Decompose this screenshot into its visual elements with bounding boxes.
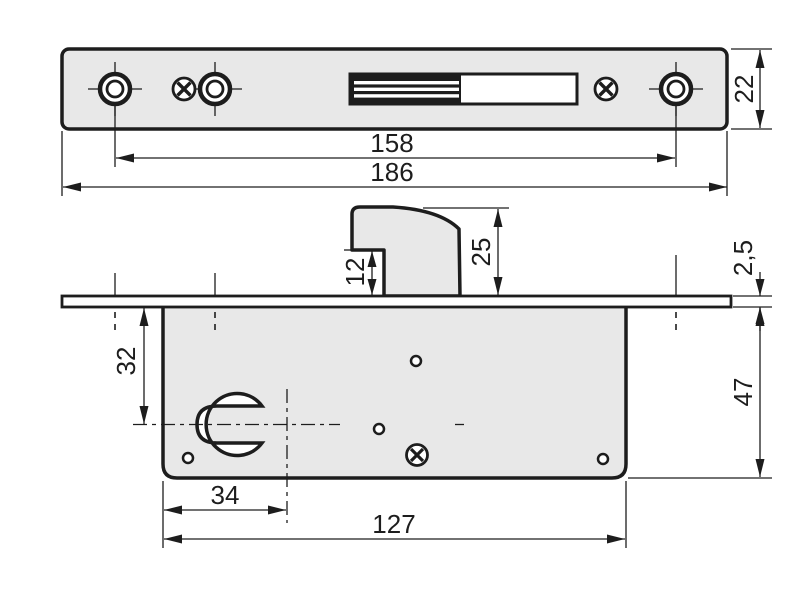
faceplate-front-view xyxy=(62,49,727,129)
dim-body-height-47: 47 xyxy=(628,308,772,478)
pin-hole xyxy=(374,424,384,434)
dim-label: 158 xyxy=(370,128,413,158)
bolt-slot xyxy=(350,74,577,104)
faceplate-edge-view xyxy=(62,296,731,307)
dim-label: 127 xyxy=(372,509,415,539)
lock-body-side-view xyxy=(62,207,731,523)
cross-screw-icon xyxy=(407,445,428,466)
dim-faceplate-width-22: 22 xyxy=(729,49,772,129)
dim-label: 34 xyxy=(211,480,240,510)
drawing-page: 158 186 22 25 12 2,5 xyxy=(0,0,800,600)
cross-screw-icon xyxy=(595,78,617,100)
dim-hook-notch-12: 12 xyxy=(340,250,377,295)
dim-label: 2,5 xyxy=(728,240,758,276)
pin-hole xyxy=(183,453,193,463)
drawing-canvas: 158 186 22 25 12 2,5 xyxy=(0,0,800,600)
pin-hole xyxy=(598,454,608,464)
dim-label: 25 xyxy=(466,238,496,267)
cross-screw-icon xyxy=(173,78,195,100)
dim-label: 186 xyxy=(370,157,413,187)
dim-faceplate-thickness-2-5: 2,5 xyxy=(728,240,772,331)
dim-label: 12 xyxy=(340,258,370,287)
pin-hole xyxy=(411,356,421,366)
dim-label: 47 xyxy=(728,378,758,407)
dim-label: 32 xyxy=(111,347,141,376)
dim-cylinder-from-faceplate-32: 32 xyxy=(111,308,149,424)
dim-label: 22 xyxy=(729,75,759,104)
